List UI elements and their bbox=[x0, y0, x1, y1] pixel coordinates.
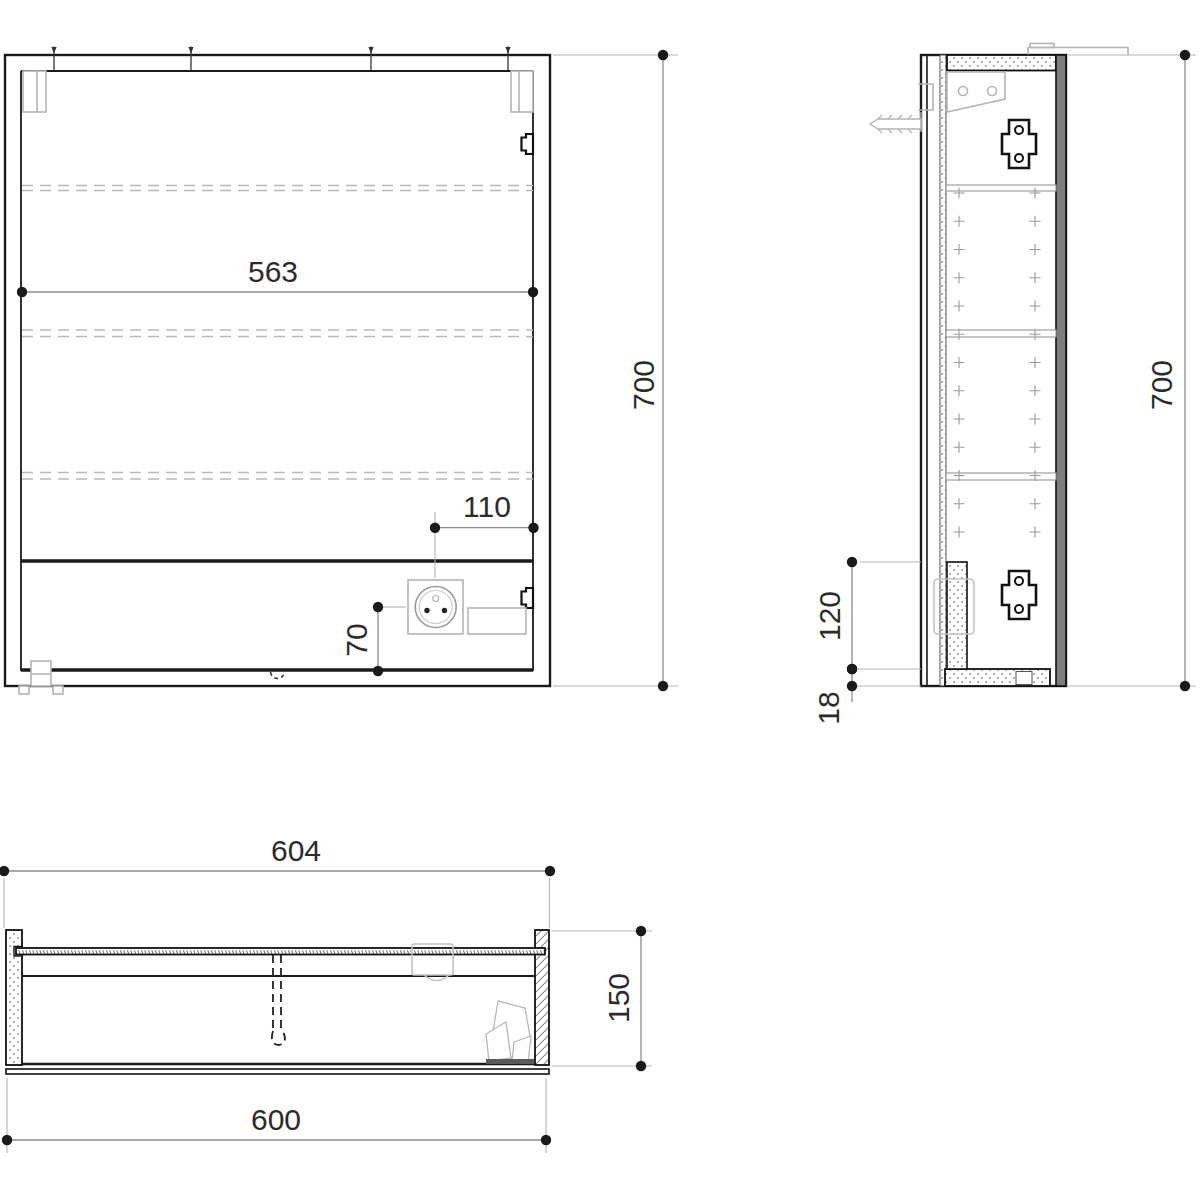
side-front-edge-strip bbox=[940, 55, 946, 686]
side-led-driver-column bbox=[947, 562, 967, 669]
wall-bracket-top-left bbox=[23, 71, 46, 112]
side-back-panel bbox=[1056, 55, 1066, 686]
top-back-panel-strip bbox=[6, 1069, 549, 1074]
side-wall-bracket bbox=[918, 72, 1005, 112]
top-door-bar bbox=[16, 948, 545, 955]
hanging-rail-icon bbox=[1028, 44, 1128, 55]
dimension-563: 563 bbox=[17, 255, 538, 297]
drawing-svg: 563 110 70 700 bbox=[0, 0, 1200, 1200]
dim-label-side-height: 700 bbox=[1145, 360, 1178, 410]
side-top-panel-section bbox=[947, 55, 1056, 71]
technical-drawing-canvas: 563 110 70 700 bbox=[0, 0, 1200, 1200]
packaging-glass-detail bbox=[486, 1001, 531, 1062]
dimension-18: 18 bbox=[812, 664, 921, 725]
dimension-700-left: 700 bbox=[553, 50, 678, 691]
pull-cord-icon bbox=[272, 955, 285, 1045]
dim-label-inner-width: 563 bbox=[248, 255, 298, 288]
side-view bbox=[870, 44, 1128, 687]
dimension-110: 110 bbox=[430, 490, 539, 533]
power-socket-icon bbox=[408, 580, 463, 634]
dim-label-lamp-compartment: 120 bbox=[813, 591, 846, 641]
dim-label-depth: 150 bbox=[602, 973, 635, 1023]
hinge-plate-bottom-icon bbox=[1002, 571, 1036, 619]
side-bottom-panel-section bbox=[945, 669, 1050, 686]
dim-label-front-height: 700 bbox=[627, 360, 660, 410]
door-hinge-bottom-icon bbox=[522, 588, 534, 608]
dim-label-door-width: 604 bbox=[271, 834, 321, 867]
wall-bracket-bottom-left bbox=[19, 661, 63, 694]
wall-bracket-top-right bbox=[511, 71, 533, 112]
hinge-plate-top-icon bbox=[1002, 120, 1036, 168]
dim-label-carcass-width: 600 bbox=[251, 1103, 301, 1136]
wall-anchor-screw-icon bbox=[870, 112, 921, 133]
dimension-604: 604 bbox=[0, 834, 555, 928]
front-view: 563 110 70 bbox=[5, 47, 550, 695]
dim-label-socket-from-right: 110 bbox=[463, 490, 511, 523]
dimension-600: 600 bbox=[2, 1078, 551, 1153]
shelf-dashed-lines bbox=[22, 186, 533, 480]
junction-box bbox=[468, 608, 526, 634]
front-outer-outline bbox=[5, 55, 550, 686]
dimension-70: 70 bbox=[340, 602, 406, 676]
dimension-120: 120 bbox=[813, 557, 921, 674]
mounting-screws-icon bbox=[51, 47, 510, 71]
dim-label-bottom-thickness: 18 bbox=[812, 691, 845, 724]
shelf-pin-holes bbox=[954, 188, 1041, 538]
door-grip-notch bbox=[271, 672, 284, 678]
top-view: 604 150 600 bbox=[0, 834, 652, 1153]
dimension-150: 150 bbox=[552, 926, 652, 1071]
side-back-groove bbox=[1016, 672, 1032, 685]
top-shelf-edge-strip bbox=[486, 1059, 534, 1064]
dim-label-socket-from-bottom: 70 bbox=[340, 623, 373, 656]
door-hinge-top-icon bbox=[522, 134, 534, 154]
side-shelves bbox=[946, 185, 1056, 480]
dimension-700-right: 700 bbox=[1068, 50, 1196, 691]
